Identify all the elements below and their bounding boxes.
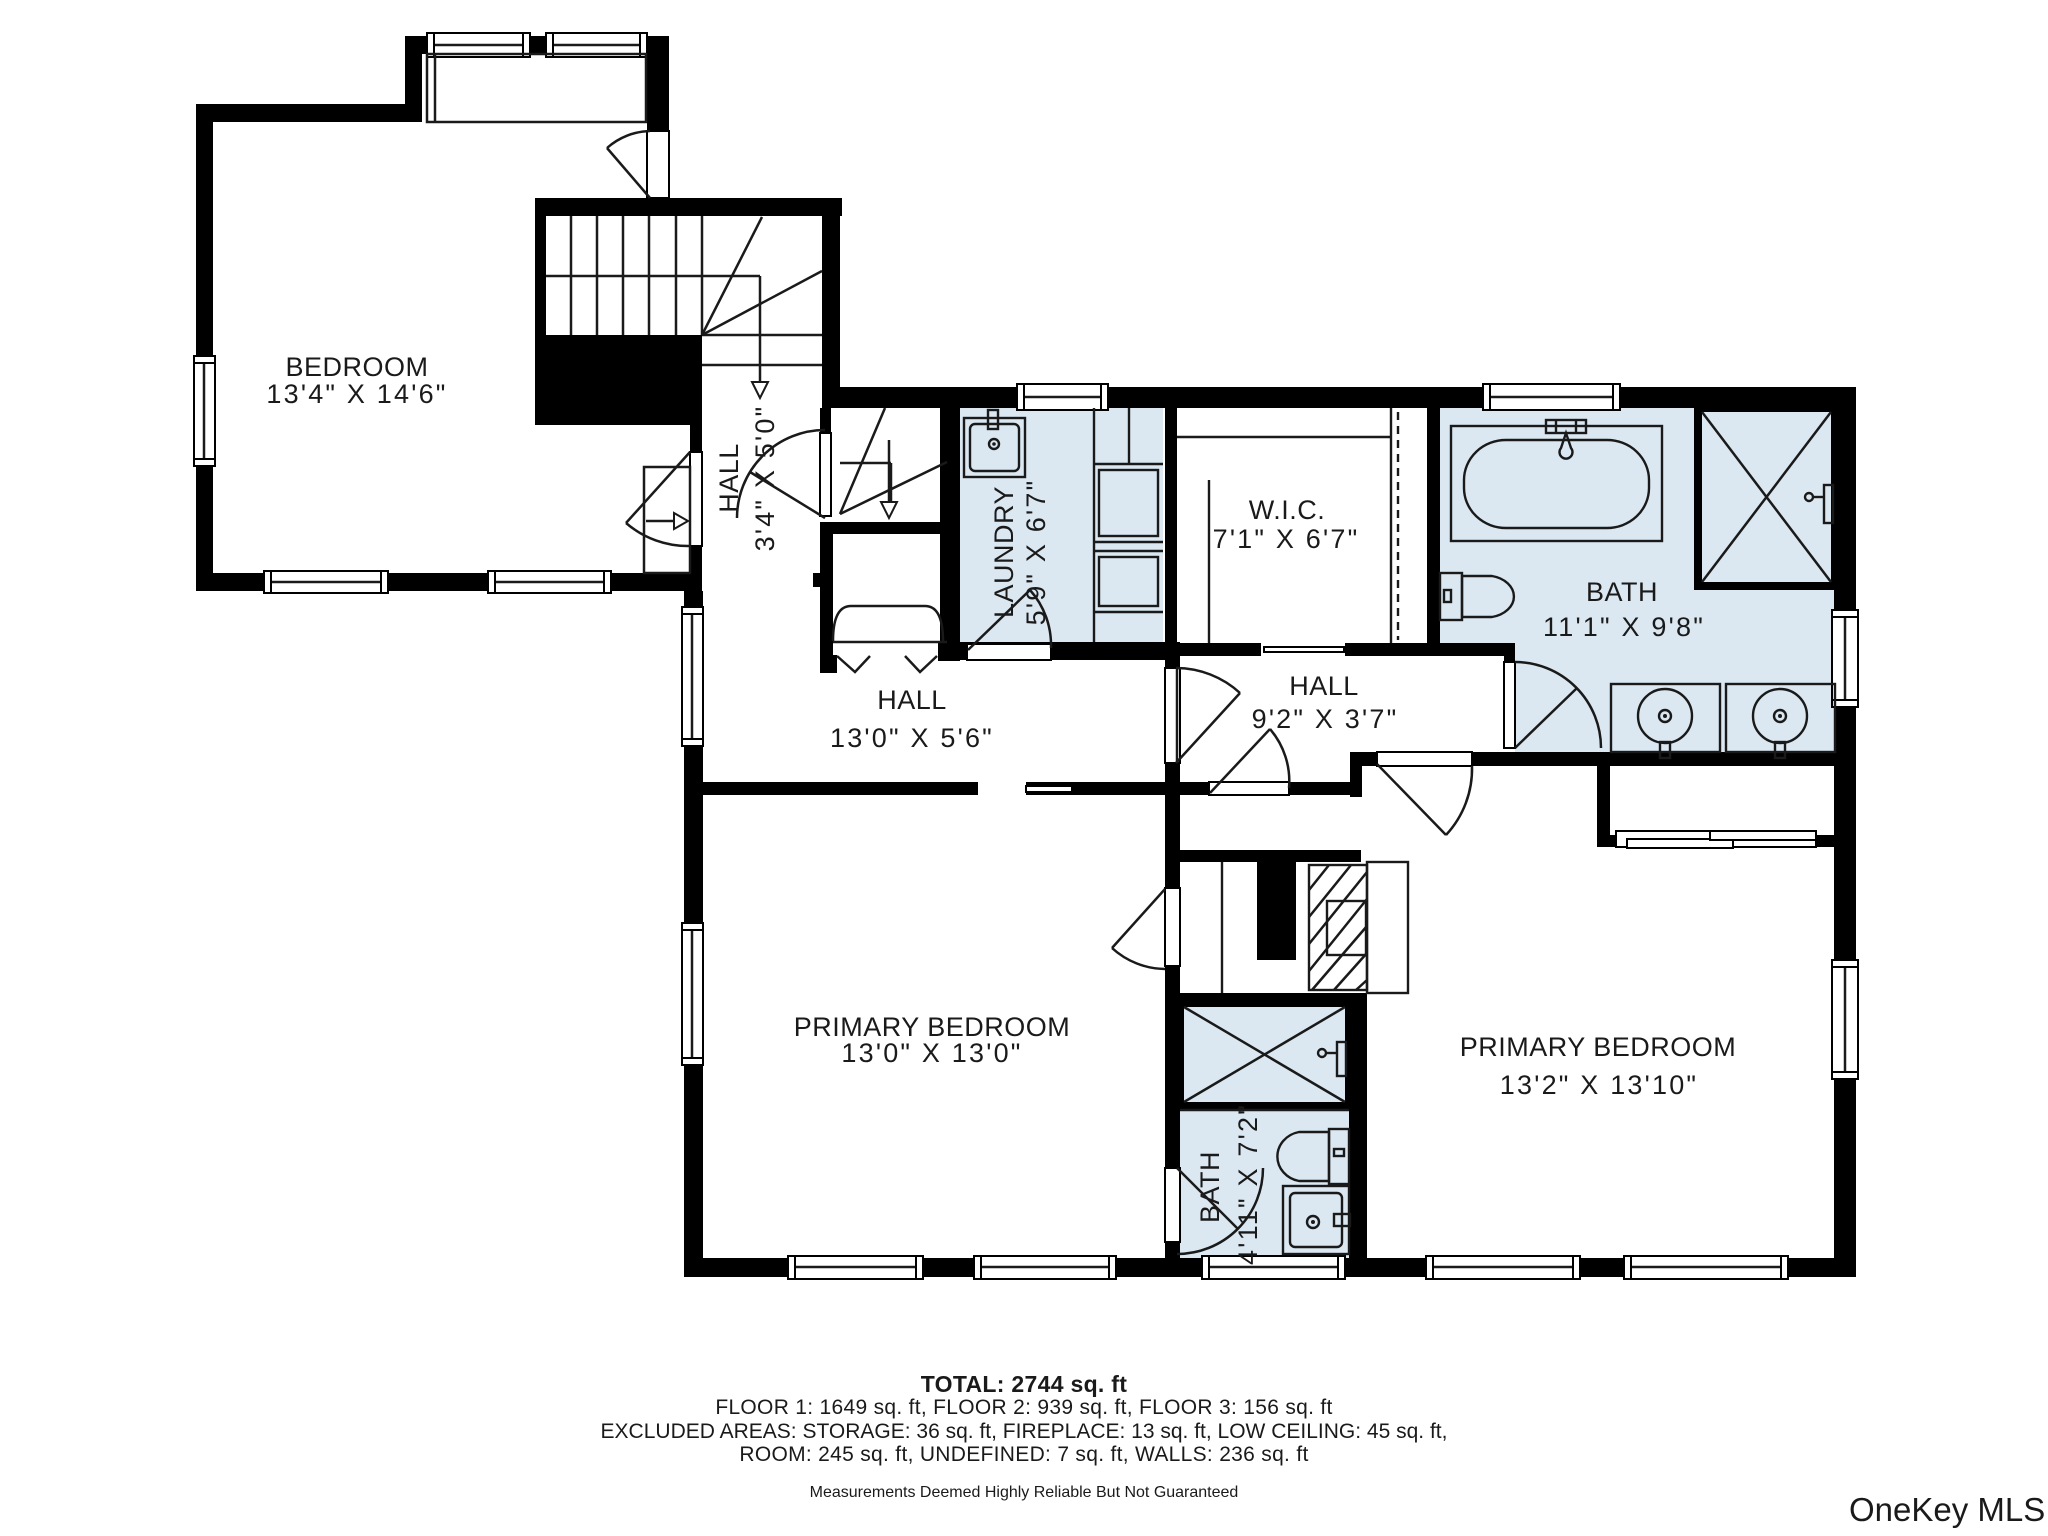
svg-text:OneKey MLS: OneKey MLS [1849, 1491, 2045, 1528]
svg-text:HALL: HALL [714, 443, 744, 513]
svg-text:HALL: HALL [1289, 671, 1359, 701]
svg-text:BATH: BATH [1195, 1151, 1225, 1223]
svg-text:HALL: HALL [877, 685, 947, 715]
svg-text:13'0" X 13'0": 13'0" X 13'0" [841, 1038, 1022, 1068]
svg-text:PRIMARY BEDROOM: PRIMARY BEDROOM [1460, 1032, 1737, 1062]
svg-text:EXCLUDED AREAS: STORAGE: 36 sq: EXCLUDED AREAS: STORAGE: 36 sq. ft, FIRE… [601, 1420, 1448, 1443]
svg-text:11'1" X 9'8": 11'1" X 9'8" [1543, 612, 1705, 642]
svg-text:TOTAL: 2744 sq. ft: TOTAL: 2744 sq. ft [921, 1371, 1128, 1397]
svg-text:Measurements Deemed Highly Rel: Measurements Deemed Highly Reliable But … [810, 1484, 1239, 1501]
svg-text:ROOM: 245 sq. ft, UNDEFINED: 7: ROOM: 245 sq. ft, UNDEFINED: 7 sq. ft, W… [739, 1443, 1308, 1466]
svg-text:13'0" X 5'6": 13'0" X 5'6" [830, 723, 994, 753]
svg-text:LAUNDRY: LAUNDRY [989, 486, 1019, 618]
svg-text:9'2" X 3'7": 9'2" X 3'7" [1252, 704, 1399, 734]
svg-text:W.I.C.: W.I.C. [1249, 495, 1326, 525]
svg-text:4'11" X 7'2": 4'11" X 7'2" [1233, 1103, 1263, 1265]
svg-text:BATH: BATH [1586, 577, 1658, 607]
svg-text:3'4" X 5'0": 3'4" X 5'0" [750, 405, 780, 552]
svg-text:BEDROOM: BEDROOM [285, 352, 428, 382]
svg-text:13'2" X 13'10": 13'2" X 13'10" [1500, 1070, 1698, 1100]
svg-text:FLOOR 1: 1649 sq. ft, FLOOR 2:: FLOOR 1: 1649 sq. ft, FLOOR 2: 939 sq. f… [715, 1396, 1332, 1419]
svg-text:5'9" X 6'7": 5'9" X 6'7" [1021, 479, 1051, 626]
svg-text:7'1" X 6'7": 7'1" X 6'7" [1213, 524, 1360, 554]
svg-text:13'4" X 14'6": 13'4" X 14'6" [266, 379, 447, 409]
